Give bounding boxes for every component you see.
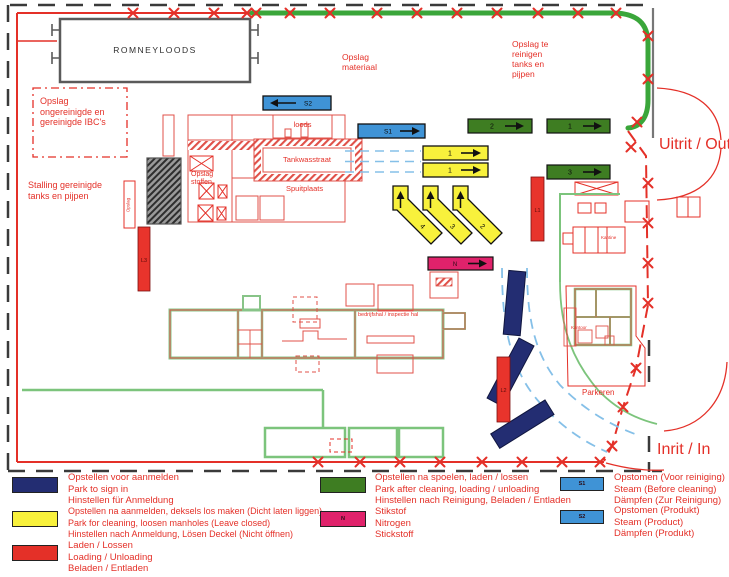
exit-gate-arc — [657, 148, 721, 200]
legend-line: Stickstoff — [375, 529, 413, 541]
spuitplaats-room — [260, 196, 284, 220]
hatch-strip — [188, 141, 258, 150]
legend-swatch-park-cleaning — [12, 511, 58, 527]
bar-label: L2 — [500, 388, 506, 394]
opslag-stoffen-label: Opslag stoffen — [191, 171, 225, 188]
bar-number: 2 — [490, 124, 494, 131]
yellow-position-bar-1b: 1 — [423, 163, 488, 177]
steam-bar-s1: S1 — [358, 124, 425, 138]
outline-box — [436, 278, 452, 286]
tankwasstraat-label: Tankwasstraat — [263, 149, 351, 171]
legend-swatch-label: N — [341, 516, 345, 522]
legend-line: Steam (Product) — [614, 517, 700, 529]
legend-line: Opstellen voor aanmelden — [68, 472, 179, 484]
s2-label: S2 — [304, 101, 312, 108]
loading-bar-l2: L2 — [497, 357, 510, 422]
legend-text-sign-in: Opstellen voor aanmelden Park to sign in… — [68, 472, 179, 507]
spuitplaats-label: Spuitplaats — [286, 185, 346, 194]
kantoor-label: Kantoor — [571, 325, 601, 330]
legend-line: Laden / Lossen — [68, 540, 153, 552]
legend-line: Dämpfen (Produkt) — [614, 528, 700, 540]
legend-line: Park to sign in — [68, 484, 179, 496]
green-position-bar-3: 3 — [547, 165, 610, 179]
legend-text-nitrogen: Stikstof Nitrogen Stickstoff — [375, 506, 413, 541]
bar-number: 1 — [568, 124, 572, 131]
parkeren-label: Parkeren — [582, 388, 632, 397]
bar-label: L1 — [534, 208, 540, 214]
green-wall-line — [22, 390, 323, 428]
legend-line: Park after cleaning, loading / unloading — [375, 484, 571, 496]
opslag-materiaal-label: Opslag materiaal — [342, 52, 394, 72]
legend-swatch-steam-before: S1 — [560, 477, 604, 491]
romneyloods-label: ROMNEYLOODS — [60, 20, 250, 81]
site-plan: Opslag — [0, 0, 729, 577]
loods-label: loods — [273, 115, 332, 135]
s1-label: S1 — [384, 129, 392, 136]
entrance-gate-label: Inrit / In — [657, 441, 710, 460]
legend-line: Opstellen na spoelen, laden / lossen — [375, 472, 571, 484]
legend-line: Park for cleaning, loosen manholes (Leav… — [68, 518, 322, 530]
legend-line: Steam (Before cleaning) — [614, 484, 725, 496]
narrow-shed — [163, 115, 174, 156]
bar-number: 3 — [568, 170, 572, 177]
exit-gate-arc — [657, 88, 721, 140]
opslag-te-reinigen-label: Opslag te reinigen tanks en pijpen — [512, 39, 559, 79]
legend-text-after-cleaning: Opstellen na spoelen, laden / lossen Par… — [375, 472, 571, 507]
nitrogen-bar: N — [428, 257, 493, 270]
entrance-gate-arc — [664, 362, 727, 431]
entrance-gate-arc — [606, 463, 664, 470]
bar-label: L3 — [141, 258, 147, 264]
legend-swatch-after-cleaning — [320, 477, 366, 493]
legend-text-steam-product: Opstomen (Produkt) Steam (Product) Dämpf… — [614, 505, 700, 540]
spuitplaats-room — [236, 196, 258, 220]
bar-number: 1 — [448, 151, 452, 158]
exit-gate-label: Uitrit / Out — [659, 136, 729, 155]
legend-swatch-nitrogen: N — [320, 511, 366, 527]
hatched-block — [147, 158, 181, 224]
legend-line: Beladen / Entladen — [68, 563, 153, 575]
opslag-stoffen-boxes — [190, 156, 227, 221]
legend-swatch-sign-in — [12, 477, 58, 493]
legend-swatch-steam-product: S2 — [560, 510, 604, 524]
legend-line: Opstomen (Produkt) — [614, 505, 700, 517]
kantine-area — [563, 182, 700, 253]
bar-label: N — [453, 262, 457, 268]
legend-swatch-loading — [12, 545, 58, 561]
legend-text-park-cleaning: Opstellen na aanmelden, deksels los make… — [68, 506, 322, 541]
legend-text-loading: Laden / Lossen Loading / Unloading Belad… — [68, 540, 153, 575]
outline-box — [346, 284, 374, 306]
green-route-line — [252, 13, 648, 128]
yellow-position-bar-1a: 1 — [423, 146, 488, 160]
small-storage-label: Opslag — [126, 197, 131, 212]
outline-box — [378, 285, 413, 311]
legend-swatch-label: S1 — [579, 481, 586, 487]
green-position-bar-2: 2 — [468, 119, 532, 133]
legend-line: Loading / Unloading — [68, 552, 153, 564]
legend-line: Nitrogen — [375, 518, 413, 530]
steam-bar-s2: S2 — [263, 96, 331, 110]
loading-bar-l3: L3 — [138, 227, 150, 291]
legend-swatch-label: S2 — [579, 514, 586, 520]
ibc-storage-label: Opslag ongereinigde en gereinigde IBC's — [40, 96, 108, 128]
green-position-bar-1: 1 — [547, 119, 610, 133]
bedrijfshal-label: bedrijfshal / inspectie hal — [358, 312, 448, 318]
legend-line: Opstomen (Voor reiniging) — [614, 472, 725, 484]
bottom-sheds — [22, 390, 443, 457]
stalling-label: Stalling gereinigde tanks en pijpen — [28, 180, 120, 201]
inspection-hall — [170, 272, 465, 373]
legend-text-steam-before: Opstomen (Voor reiniging) Steam (Before … — [614, 472, 725, 507]
legend-line: Stikstof — [375, 506, 413, 518]
bar-number: 1 — [448, 168, 452, 175]
hall-annex — [243, 296, 260, 310]
legend-line: Opstellen na aanmelden, deksels los make… — [68, 506, 322, 518]
kantine-label: Kantine — [601, 235, 627, 240]
loading-bar-l1: L1 — [531, 177, 544, 241]
